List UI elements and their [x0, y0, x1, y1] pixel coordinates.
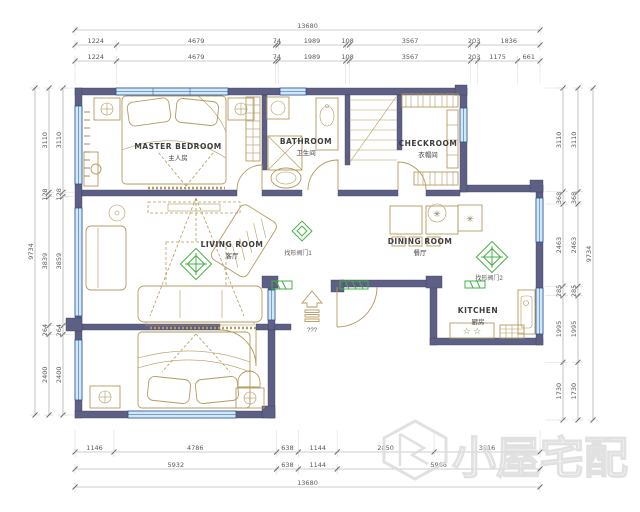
svg-text:13680: 13680	[297, 22, 318, 30]
rug-diamond	[180, 248, 211, 279]
bedroom2-door-swing	[220, 330, 256, 366]
svg-text:74: 74	[273, 53, 281, 61]
svg-text:✳: ✳	[466, 214, 474, 224]
room-checkroom: CHECKROOM 衣帽间	[398, 94, 458, 190]
room-label-living-cn: 客厅	[226, 251, 240, 260]
room-label-dining: DINING ROOM	[388, 237, 453, 246]
room-dining: ✳ ✳ DINING ROOM 餐厅 找形阀门2	[388, 204, 508, 282]
room-label-bathroom-cn: 卫生间	[296, 148, 316, 157]
svg-text:1146: 1146	[86, 444, 103, 452]
svg-text:1989: 1989	[304, 53, 321, 61]
bed-double	[138, 332, 250, 408]
room-label-kitchen: KITCHEN	[458, 306, 498, 315]
svg-text:1175: 1175	[489, 53, 506, 61]
planter-icon	[465, 281, 485, 288]
window-master-left	[75, 106, 82, 184]
svg-text:3859: 3859	[55, 253, 63, 270]
svg-text:5932: 5932	[168, 461, 185, 469]
floorplan-canvas: 1368012244679741989108356720318361224467…	[0, 0, 640, 512]
window-entry-west	[268, 290, 275, 320]
svg-text:4679: 4679	[188, 37, 205, 45]
svg-text:3110: 3110	[570, 132, 578, 149]
drainboard	[500, 325, 524, 338]
room-label-master-bedroom: MASTER BEDROOM	[134, 142, 221, 151]
svg-text:128: 128	[55, 188, 63, 200]
ceiling-lamp-icon	[109, 205, 125, 221]
svg-text:1836: 1836	[501, 37, 518, 45]
window-kitchen-right	[536, 288, 543, 334]
svg-text:1730: 1730	[570, 383, 578, 400]
floorplan-drawing: 1368012244679741989108356720318361224467…	[0, 0, 640, 512]
svg-text:✳: ✳	[433, 209, 441, 219]
checkroom-door-swing	[398, 162, 426, 190]
svg-text:638: 638	[281, 444, 293, 452]
staircase	[349, 97, 397, 162]
rug-diamond	[476, 241, 507, 272]
svg-text:264: 264	[41, 324, 49, 336]
plant-box: ✳	[458, 205, 482, 231]
svg-text:1144: 1144	[309, 461, 326, 469]
svg-text:264: 264	[55, 324, 63, 336]
wardrobe	[246, 97, 260, 161]
svg-text:285: 285	[555, 285, 563, 297]
master-door-swing	[237, 165, 262, 190]
window-checkroom-right	[460, 108, 467, 142]
chair	[238, 371, 260, 387]
room-kitchen: ☆ ☆ KITCHEN 厨房	[450, 290, 535, 338]
washing-machine	[267, 97, 289, 119]
room-label-dining-cn: 餐厅	[414, 248, 428, 257]
lamp-icon	[235, 103, 247, 115]
svg-text:108: 108	[341, 37, 353, 45]
room-bedroom2	[90, 328, 264, 408]
svg-text:1995: 1995	[570, 321, 578, 338]
window-bedroom2-bottom	[128, 411, 236, 418]
room-living: LIVING ROOM 客厅 找形阀门1	[86, 198, 312, 325]
lamp-icon	[101, 103, 113, 115]
svg-text:1144: 1144	[309, 444, 326, 452]
bed-double	[122, 96, 226, 184]
armchair	[86, 226, 126, 290]
sofa	[138, 286, 262, 325]
svg-text:3110: 3110	[55, 132, 63, 149]
svg-text:2463: 2463	[570, 237, 578, 254]
window-living-left	[75, 208, 82, 316]
window-dining-right	[536, 198, 543, 242]
entry: ???	[272, 281, 485, 334]
desk	[84, 152, 101, 186]
svg-text:3110: 3110	[41, 132, 49, 149]
fan-icon: ✳	[428, 204, 446, 222]
svg-text:638: 638	[281, 461, 293, 469]
room-label-master-bedroom-cn: 主人房	[168, 153, 188, 162]
hanger-rack-top	[402, 94, 458, 107]
svg-text:203: 203	[468, 37, 480, 45]
svg-text:2400: 2400	[55, 367, 63, 384]
bathtub	[271, 168, 301, 188]
sink	[518, 290, 535, 334]
room-label-checkroom: CHECKROOM	[399, 139, 458, 148]
svg-text:1995: 1995	[555, 321, 563, 338]
svg-text:368: 368	[570, 192, 578, 204]
svg-text:1224: 1224	[88, 53, 105, 61]
svg-text:9734: 9734	[27, 243, 35, 260]
bathroom-door-swing	[308, 160, 338, 190]
svg-text:2463: 2463	[555, 237, 563, 254]
svg-text:285: 285	[570, 285, 578, 297]
svg-text:3110: 3110	[555, 132, 563, 149]
room-master-bedroom: MASTER BEDROOM 主人房	[84, 96, 262, 190]
svg-text:661: 661	[523, 53, 535, 61]
room-label-kitchen-cn: 厨房	[472, 317, 485, 326]
svg-text:74: 74	[273, 37, 281, 45]
door-label-1: 找形阀门1	[284, 249, 312, 257]
svg-text:368: 368	[555, 192, 563, 204]
stove-burner-icon: ☆ ☆	[463, 326, 482, 336]
window-master-top	[116, 88, 228, 95]
watermark-text: 小屋宅配	[452, 434, 628, 483]
svg-text:3567: 3567	[402, 37, 419, 45]
window-bedroom2-left	[75, 340, 82, 400]
svg-text:3839: 3839	[41, 253, 49, 270]
room-label-living: LIVING ROOM	[201, 240, 264, 249]
svg-text:1989: 1989	[304, 37, 321, 45]
window-bath-top	[280, 88, 306, 95]
svg-text:4679: 4679	[188, 53, 205, 61]
svg-text:3567: 3567	[402, 53, 419, 61]
svg-text:2400: 2400	[41, 366, 49, 383]
svg-text:13680: 13680	[297, 479, 318, 487]
svg-text:1224: 1224	[88, 37, 105, 45]
svg-text:108: 108	[341, 53, 353, 61]
hall-diamond	[292, 221, 312, 241]
room-label-checkroom-cn: 衣帽间	[418, 150, 438, 159]
room-bathroom: BATHROOM 卫生间	[267, 97, 338, 190]
svg-text:1730: 1730	[555, 383, 563, 400]
svg-text:2850: 2850	[377, 444, 394, 452]
room-label-bathroom: BATHROOM	[280, 137, 332, 146]
radiator-icon	[84, 112, 90, 176]
lamp-icon	[99, 391, 111, 403]
entry-label: ???	[307, 328, 318, 334]
svg-text:9734: 9734	[585, 246, 593, 263]
entry-door-swing	[337, 287, 377, 327]
svg-text:4786: 4786	[187, 444, 204, 452]
svg-text:128: 128	[41, 188, 49, 200]
svg-text:203: 203	[468, 53, 480, 61]
entry-arrow-icon	[302, 291, 322, 307]
lamp-icon	[244, 392, 256, 404]
